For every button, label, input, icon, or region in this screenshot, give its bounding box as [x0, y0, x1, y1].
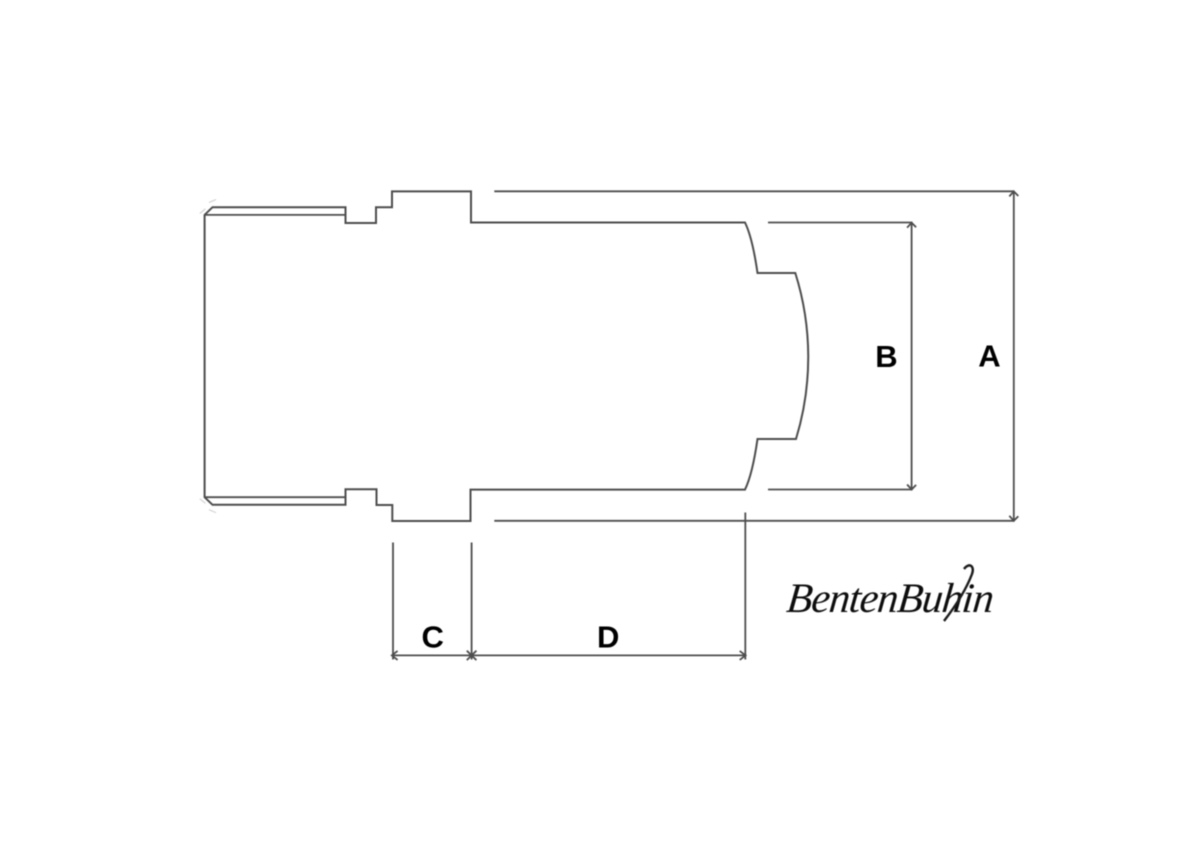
svg-text:C: C [422, 620, 444, 655]
svg-text:D: D [597, 620, 619, 655]
svg-text:A: A [978, 339, 1000, 374]
svg-text:B: B [875, 339, 897, 374]
svg-text:BentenBuhin: BentenBuhin [785, 575, 996, 622]
